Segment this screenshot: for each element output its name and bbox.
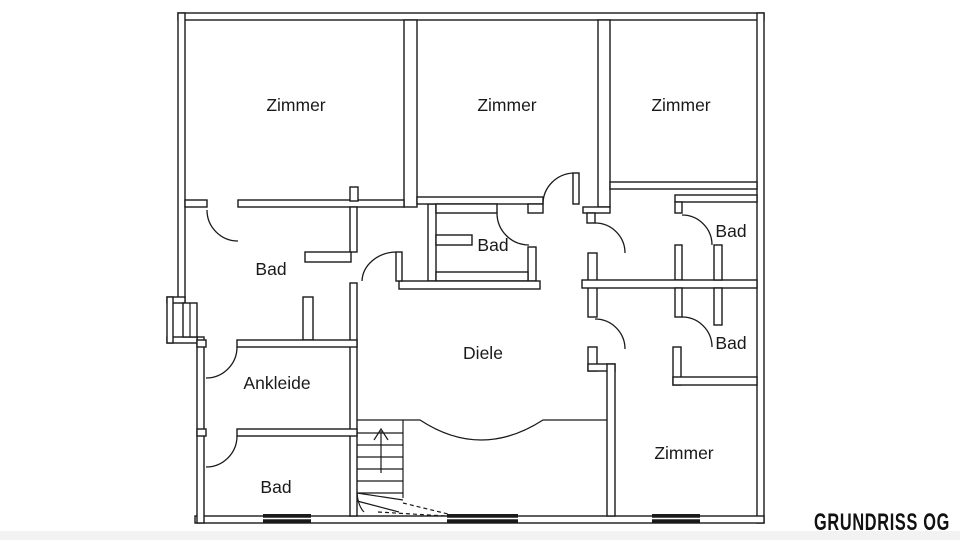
plan-title: GRUNDRISS OG <box>814 509 950 536</box>
door-arc <box>206 436 237 467</box>
window <box>263 514 311 523</box>
door-arc <box>682 215 712 245</box>
floorplan-page: Zimmer Zimmer Zimmer Bad Bad Bad Diele B… <box>0 0 960 540</box>
window <box>183 303 197 337</box>
door-arc <box>207 210 238 241</box>
door-arc <box>595 319 625 349</box>
room-label-bad-right-upper: Bad <box>715 221 746 241</box>
room-label-zimmer-top-middle: Zimmer <box>477 95 536 115</box>
window <box>652 514 700 523</box>
door-arc <box>595 223 625 253</box>
room-label-bad-left: Bad <box>255 259 286 279</box>
door-leaf <box>396 252 402 281</box>
door-leaf <box>573 173 579 204</box>
door-arc <box>362 252 396 281</box>
room-label-diele: Diele <box>463 343 503 363</box>
arched-opening <box>357 420 607 440</box>
door-arcs <box>206 173 712 467</box>
room-label-zimmer-bottom-right: Zimmer <box>654 443 713 463</box>
door-arc <box>682 317 712 347</box>
stairs-up-arrow-icon <box>374 429 388 473</box>
room-label-bad-right-lower: Bad <box>715 333 746 353</box>
floorplan-canvas: Zimmer Zimmer Zimmer Bad Bad Bad Diele B… <box>0 0 960 540</box>
room-label-zimmer-top-left: Zimmer <box>266 95 325 115</box>
room-label-bad-bottom-left: Bad <box>260 477 291 497</box>
room-label-ankleide: Ankleide <box>243 373 310 393</box>
door-arc <box>543 173 573 203</box>
window <box>447 514 518 523</box>
room-labels: Zimmer Zimmer Zimmer Bad Bad Bad Diele B… <box>243 95 746 497</box>
room-label-bad-middle: Bad <box>477 235 508 255</box>
staircase <box>357 420 448 516</box>
door-arc <box>206 347 237 378</box>
room-label-zimmer-top-right: Zimmer <box>651 95 710 115</box>
